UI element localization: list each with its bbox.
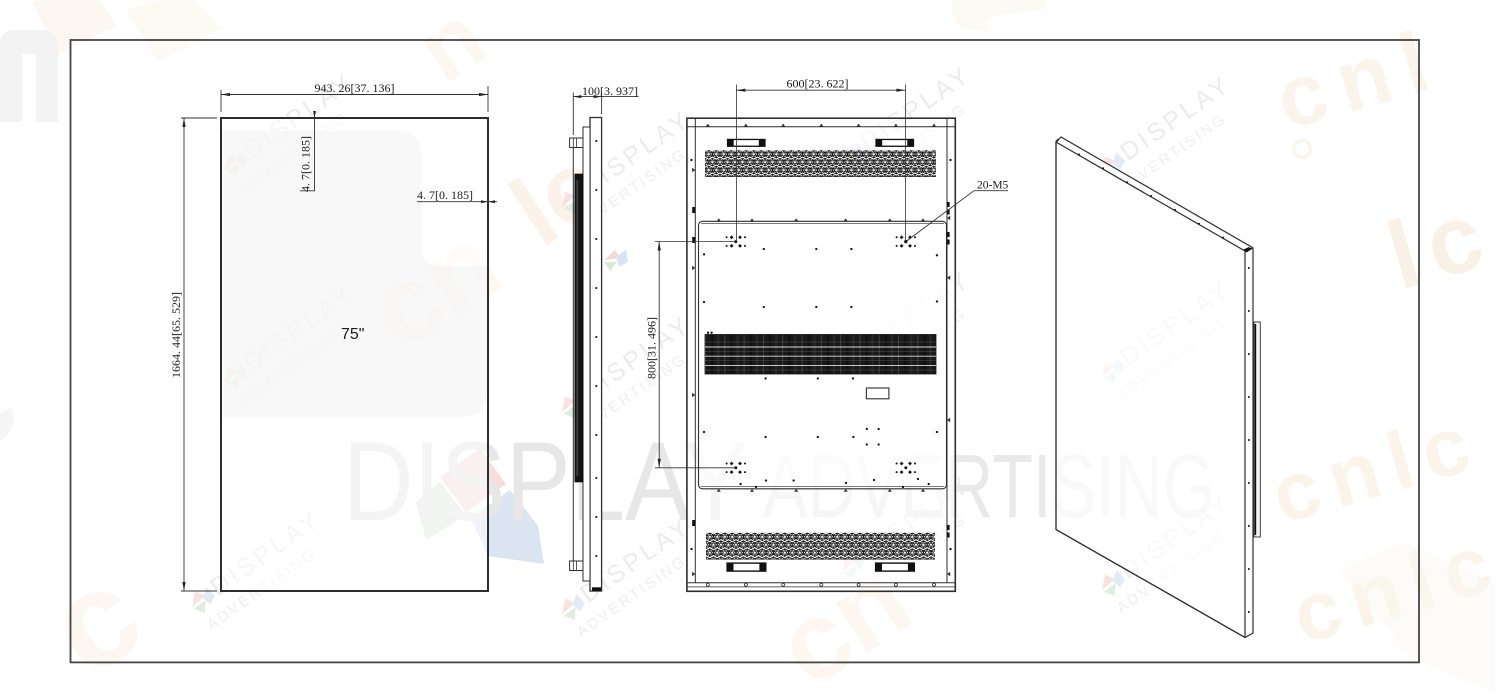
svg-text:1664. 44[65. 529]: 1664. 44[65. 529]: [169, 292, 183, 378]
svg-text:c: c: [0, 322, 39, 485]
svg-text:lc: lc: [1376, 179, 1500, 311]
svg-text:c: c: [22, 537, 167, 696]
svg-text:n: n: [400, 0, 503, 102]
svg-text:cnlc: cnlc: [1262, 395, 1491, 541]
svg-text:75": 75": [341, 326, 364, 343]
svg-text:943. 26[37. 136]: 943. 26[37. 136]: [315, 81, 395, 95]
svg-text:cnl: cnl: [1266, 10, 1452, 148]
svg-text:600[23. 622]: 600[23. 622]: [787, 77, 849, 91]
svg-text:4. 7[0. 185]: 4. 7[0. 185]: [299, 136, 313, 192]
svg-text:4. 7[0. 185]: 4. 7[0. 185]: [417, 188, 473, 202]
svg-text:20-M5: 20-M5: [977, 180, 1009, 192]
svg-text:lc: lc: [492, 128, 623, 267]
svg-text:100[3. 937]: 100[3. 937]: [582, 84, 638, 98]
svg-text:800[31. 496]: 800[31. 496]: [645, 317, 659, 379]
